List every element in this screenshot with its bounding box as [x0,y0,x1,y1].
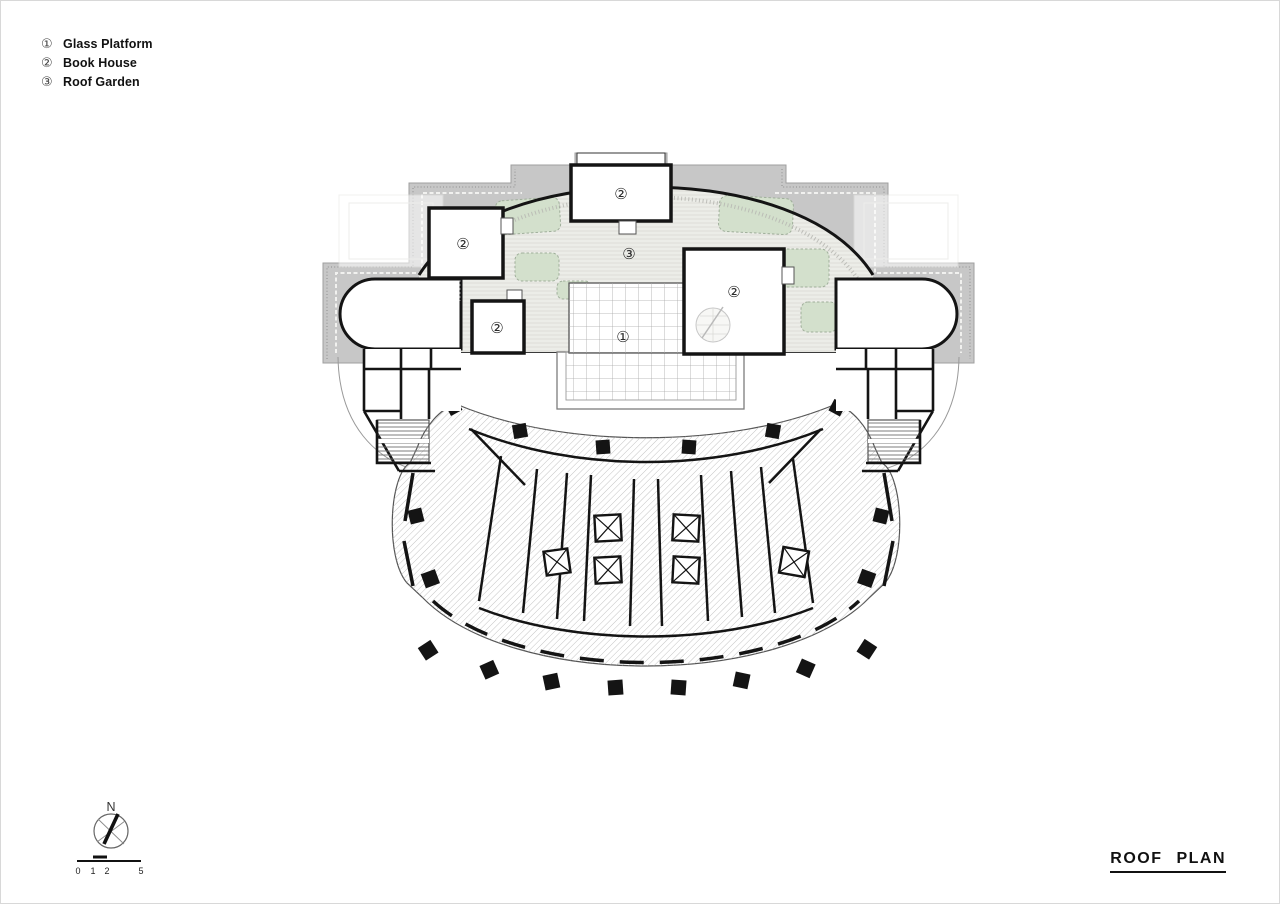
scale-tick-5: 5 [138,866,143,876]
left-wing-room [340,279,461,349]
legend-item-roof-garden: ③ Roof Garden [41,72,153,91]
scale-tick-2: 2 [104,866,109,876]
right-service-block [836,349,933,411]
marker-book-house-left: ② [456,236,469,253]
platform-lower-grid [566,352,736,400]
scale-tick-0: 0 [75,866,80,876]
marker-glass-platform: ① [616,329,629,346]
planting-bed [801,302,837,332]
faint-panel-right [854,195,958,267]
marker-roof-garden: ③ [622,246,635,263]
legend-item-book-house: ② Book House [41,53,153,72]
compass-needle [104,814,118,844]
scale-bar: 0 1 2 5 [75,857,143,876]
book-house-right [684,249,784,354]
tower-floor-plate [392,398,899,695]
marker-book-house-small: ② [490,320,503,337]
plan-title: ROOF PLAN [1110,850,1226,873]
legend: ① Glass Platform ② Book House ③ Roof Gar… [41,34,153,91]
book-house-left-door [501,218,513,234]
marker-book-house-right: ② [727,284,740,301]
legend-label: Book House [63,56,137,70]
legend-label: Glass Platform [63,37,153,51]
planting-bed [515,253,559,281]
legend-symbol: ① [41,36,63,52]
north-label: N [106,800,115,814]
drawing-sheet: ② ② ② ② ③ ① N 0 1 2 5 ① [0,0,1280,904]
left-service-block [364,349,461,411]
book-house-right-door [782,267,794,284]
legend-symbol: ③ [41,74,63,90]
north-arrow: N [94,800,128,848]
roof-plan-drawing: ② ② ② ② ③ ① N 0 1 2 5 [1,1,1280,904]
right-wing-room [836,279,957,349]
scale-tick-1: 1 [90,866,95,876]
marker-book-house-top: ② [614,186,627,203]
legend-label: Roof Garden [63,75,140,89]
book-house-top-notch [619,221,636,234]
legend-symbol: ② [41,55,63,71]
book-house-top-cap [577,153,665,165]
legend-item-glass-platform: ① Glass Platform [41,34,153,53]
